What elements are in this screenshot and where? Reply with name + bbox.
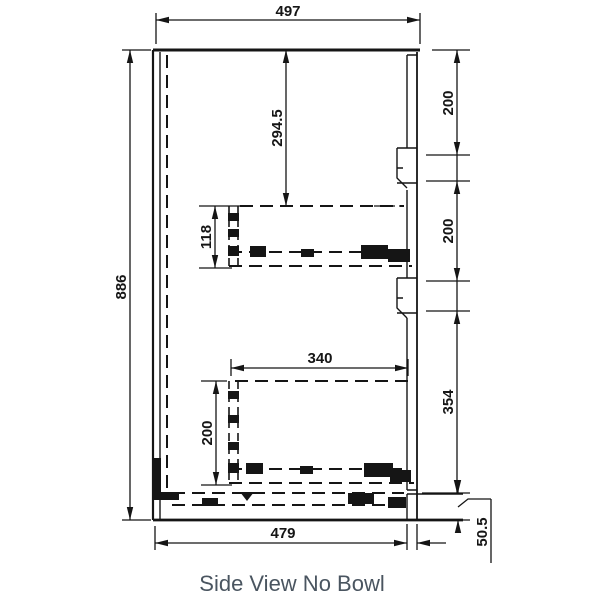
dimension-bottom-width: 479: [155, 524, 446, 550]
dimension-lower-drawer-height: 200: [199, 381, 232, 485]
dimension-overall-height: 886: [113, 50, 151, 520]
dimension-lower-drawer-length: 340: [231, 350, 408, 376]
dim-lower-drawer-length-label: 340: [307, 350, 332, 367]
side-view-drawing: 497 886 294.5 118 340 200 200 200 354: [0, 0, 600, 600]
drawing-caption: Side View No Bowl: [199, 571, 384, 596]
dim-lower-drawer-height-label: 200: [199, 420, 216, 445]
drawer-runner-hardware: [153, 213, 411, 508]
dim-front-bottom-panel-label: 354: [440, 389, 457, 415]
dimension-top-width: 497: [156, 3, 420, 44]
dim-top-to-upper-drawer-label: 294.5: [269, 109, 286, 147]
dimension-top-to-upper-drawer: 294.5: [269, 50, 286, 206]
technical-drawing-page: 497 886 294.5 118 340 200 200 200 354: [0, 0, 600, 600]
dim-kickboard-height-label: 50.5: [474, 517, 491, 546]
cabinet-outline: [153, 50, 463, 520]
dim-front-top-panel-label: 200: [440, 90, 457, 115]
dimension-front-panel-chain: 200 200 354: [422, 50, 470, 520]
dim-top-width-label: 497: [275, 3, 300, 20]
dim-overall-height-label: 886: [113, 274, 130, 299]
dim-front-middle-panel-label: 200: [440, 218, 457, 243]
dim-upper-drawer-height-label: 118: [198, 225, 215, 249]
dim-bottom-width-label: 479: [270, 525, 295, 542]
